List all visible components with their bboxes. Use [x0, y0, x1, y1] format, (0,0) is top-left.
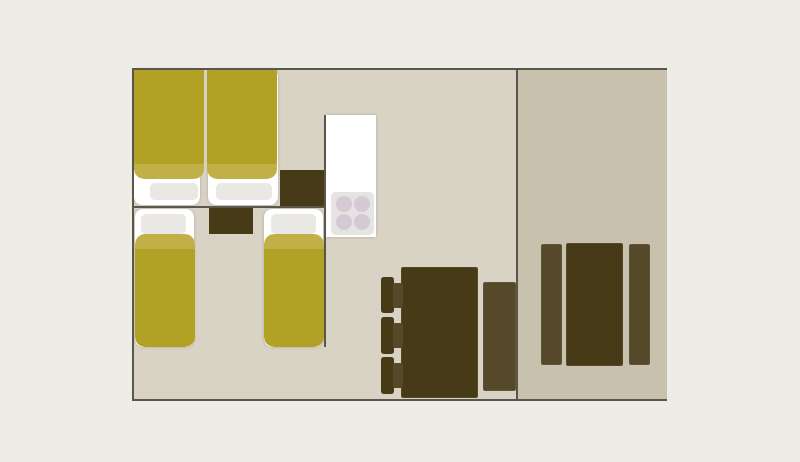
dining-bench: [483, 282, 516, 391]
terrace-bench-left: [541, 244, 562, 365]
wall-bottom: [133, 399, 667, 401]
twin-nightstand: [209, 208, 253, 234]
double-bed-pillow-left: [150, 183, 198, 200]
stove-burner-2: [354, 196, 370, 212]
dining-chair-3-seat: [393, 363, 403, 388]
stove-burner-4: [354, 214, 370, 230]
stove-burner-1: [336, 196, 352, 212]
wall-center-divider: [516, 68, 518, 401]
terrace-table: [566, 243, 623, 366]
wall-top: [133, 68, 667, 70]
twin-bed-right-duvet: [264, 249, 324, 347]
double-bed-duvet-left: [134, 69, 204, 164]
wardrobe: [280, 170, 325, 207]
floorplan-canvas: [0, 0, 800, 462]
wall-left: [132, 68, 134, 401]
terrace-bench-right: [629, 244, 650, 365]
wall-bedroom-divider: [133, 206, 326, 208]
double-bed-pillow-right: [216, 183, 272, 200]
stove-burner-3: [336, 214, 352, 230]
dining-table: [401, 267, 478, 398]
dining-chair-2-seat: [393, 323, 403, 348]
twin-bed-left-duvet: [135, 249, 195, 347]
dining-chair-1-seat: [393, 283, 403, 308]
twin-bed-left-pillow: [141, 214, 186, 234]
wall-kitchen: [324, 115, 326, 347]
double-bed-duvet-right: [207, 69, 277, 164]
twin-bed-right-pillow: [271, 214, 316, 234]
